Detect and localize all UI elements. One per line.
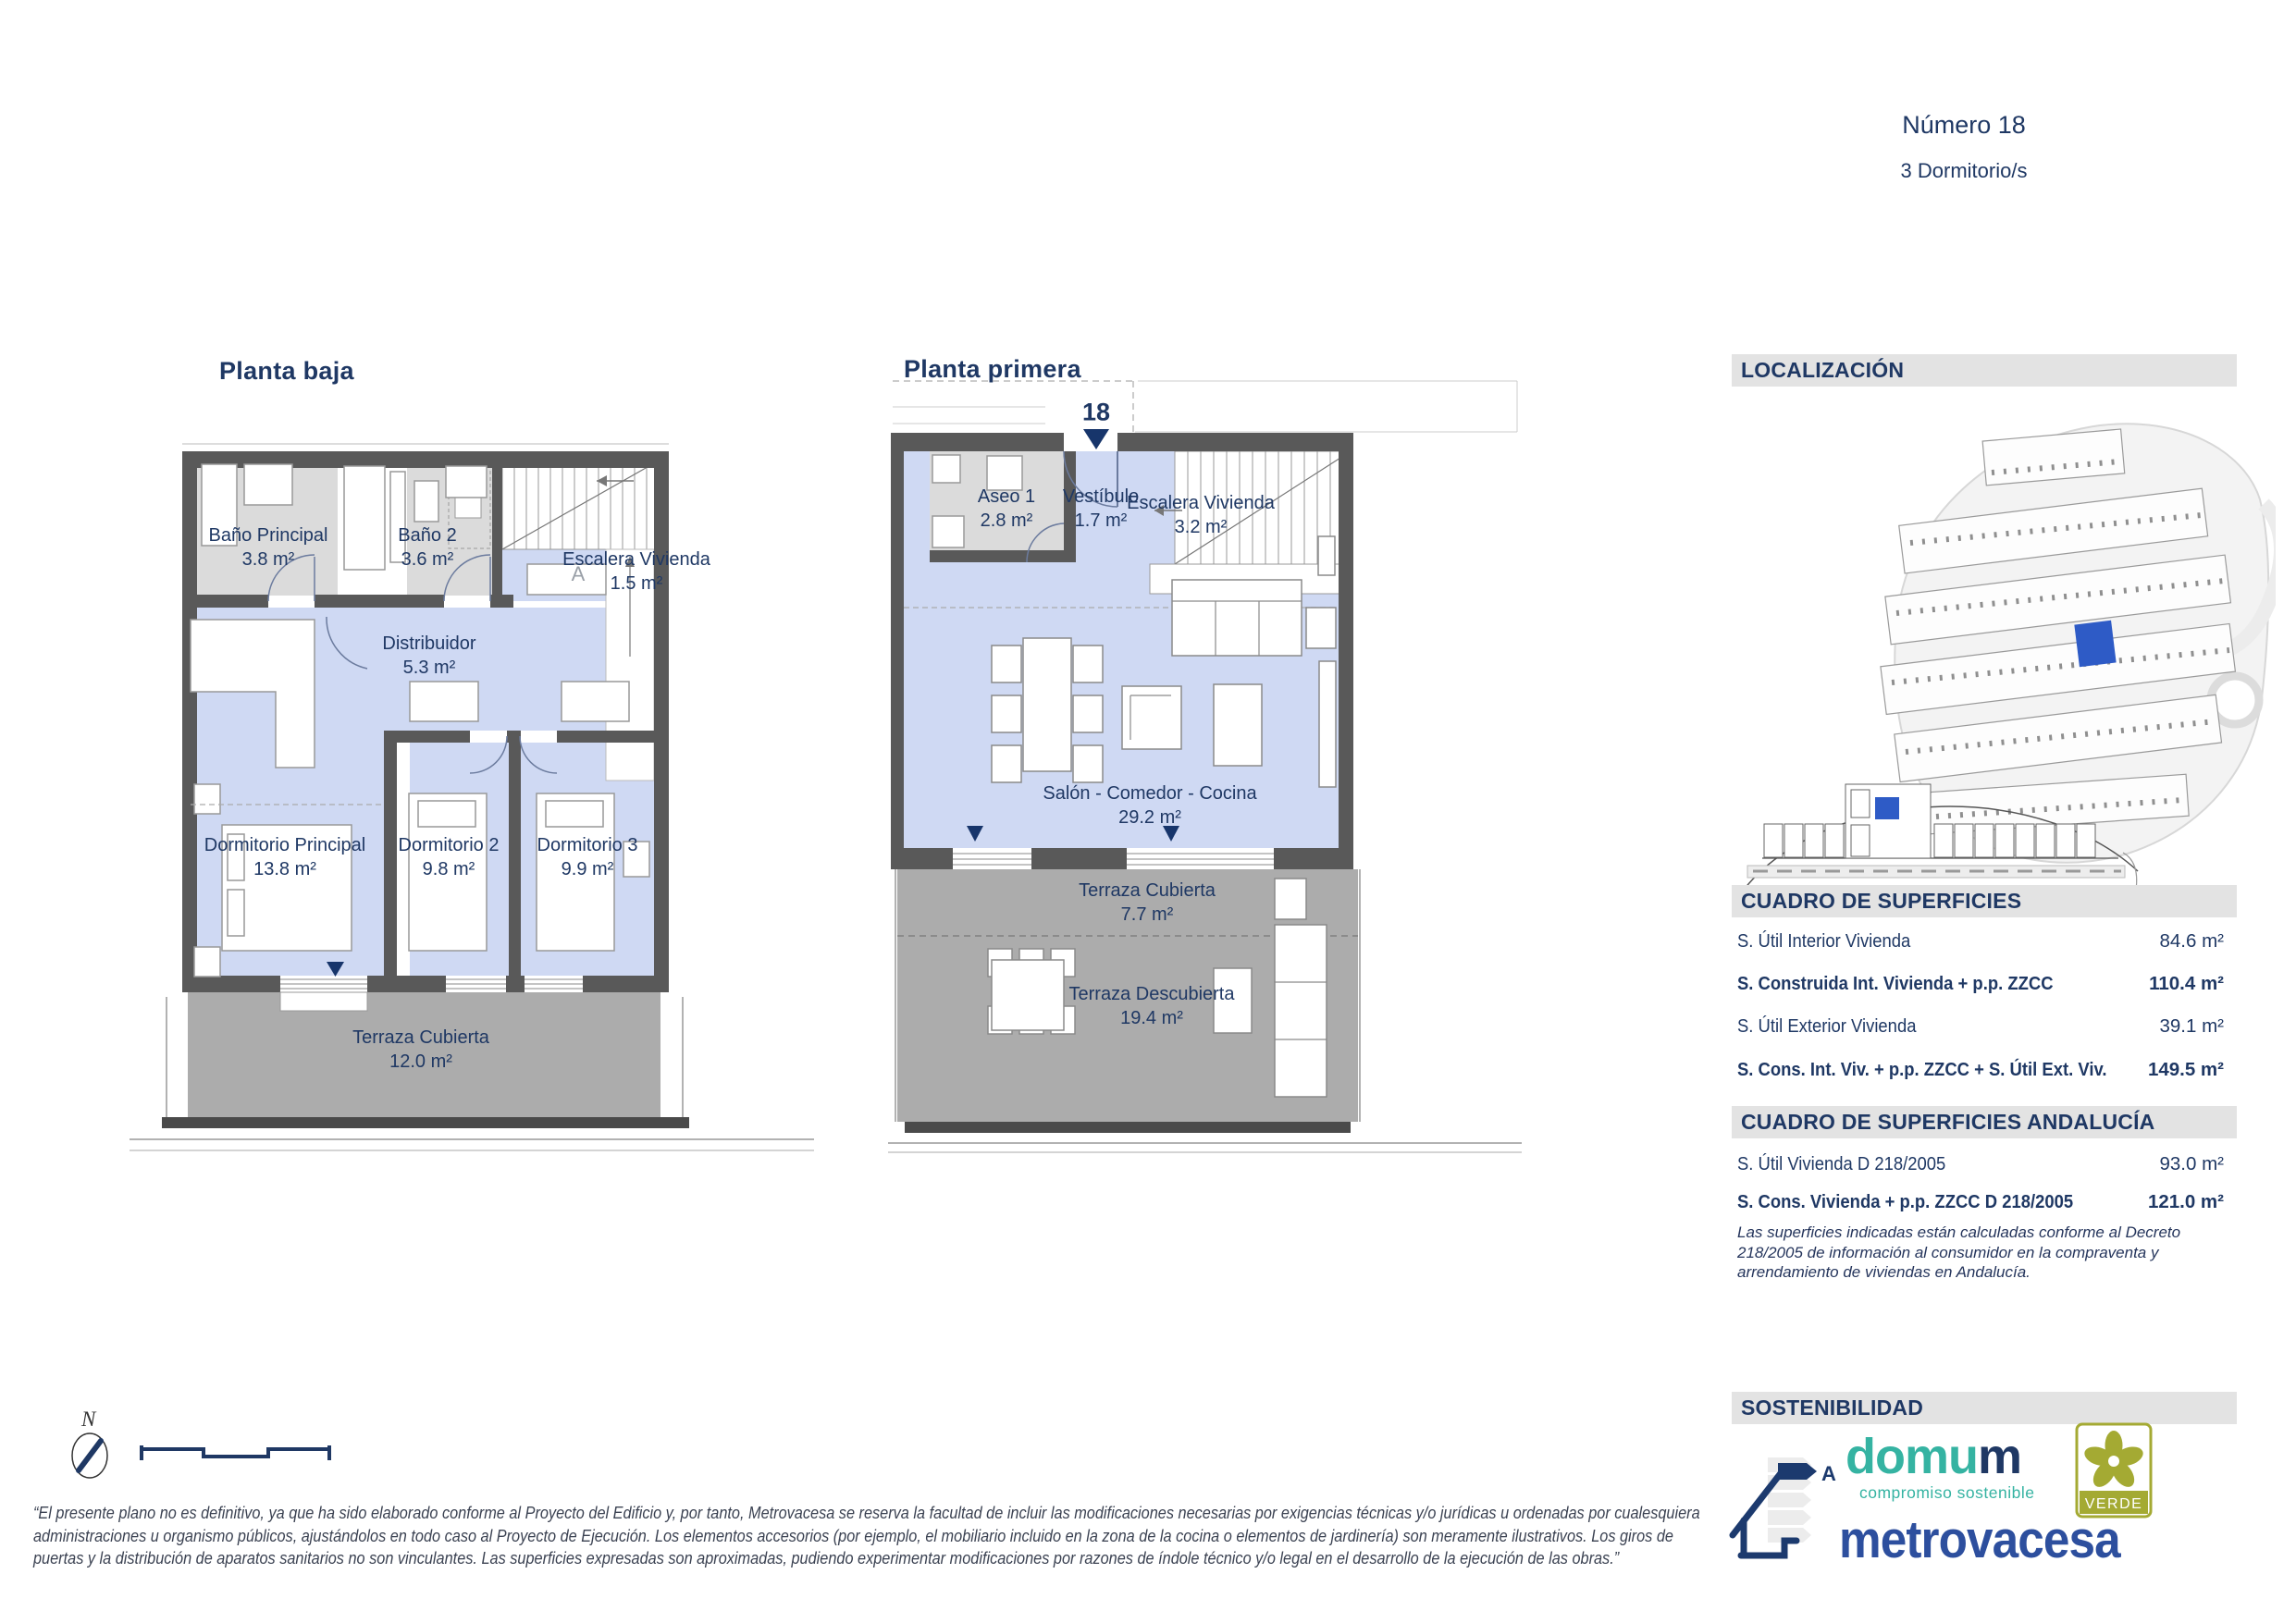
room-label-escalera-vivienda-p1: Escalera Vivienda3.2 m² — [1127, 491, 1275, 539]
bedrooms-subtitle: 3 Dormitorio/s — [1825, 159, 2103, 183]
energy-rating-icon: A — [1725, 1443, 1850, 1563]
unit-entry-marker-triangle — [1083, 429, 1109, 449]
legal-disclaimer: “El presente plano no es definitivo, ya … — [33, 1502, 1700, 1570]
room-label-terraza-cubierta-p1: Terraza Cubierta7.7 m² — [1079, 879, 1216, 927]
section-title-sostenibilidad: SOSTENIBILIDAD — [1741, 1396, 1923, 1420]
highlighted-unit-3d — [2074, 621, 2116, 668]
unit-number-title: Número 18 — [1825, 111, 2103, 140]
plan-sheet: Número 18 3 Dormitorio/s Planta baja Pla… — [0, 0, 2296, 1623]
domum-tagline: compromiso sostenible — [1859, 1483, 2034, 1503]
disclaimer-line: administraciones u organismo públicos, a… — [33, 1525, 1700, 1548]
room-label-terraza-cubierta-pb: Terraza Cubierta12.0 m² — [352, 1026, 489, 1074]
section-header-superficies: CUADRO DE SUPERFICIES — [1732, 885, 2237, 917]
surface-row: S. Útil Exterior Vivienda 39.1 m² — [1737, 1015, 2224, 1043]
room-label-bano-2: Baño 23.6 m² — [398, 523, 456, 572]
room-label-terraza-descubierta: Terraza Descubierta19.4 m² — [1069, 982, 1235, 1030]
north-label: N — [81, 1408, 95, 1432]
room-label-dormitorio-2: Dormitorio 29.8 m² — [399, 833, 500, 881]
room-label-salon-comedor-cocina: Salón - Comedor - Cocina29.2 m² — [1043, 781, 1256, 830]
site-map-plan — [1734, 714, 2142, 894]
domum-logo: domum — [1845, 1428, 2021, 1485]
surface-row: S. Cons. Int. Viv. + p.p. ZZCC + S. Útil… — [1737, 1059, 2224, 1087]
verde-logo: VERDE — [2075, 1422, 2153, 1518]
section-title-localizacion: LOCALIZACIÓN — [1741, 358, 1904, 383]
room-label-bano-principal: Baño Principal3.8 m² — [209, 523, 328, 572]
section-title-superficies-andalucia: CUADRO DE SUPERFICIES ANDALUCÍA — [1741, 1110, 2154, 1135]
section-title-superficies: CUADRO DE SUPERFICIES — [1741, 889, 2021, 914]
section-header-localizacion: LOCALIZACIÓN — [1732, 354, 2237, 387]
stair-zone-label: A — [572, 562, 586, 586]
unit-number-marker: 18 — [1082, 399, 1110, 427]
highlighted-unit-plan — [1875, 797, 1899, 819]
room-label-dormitorio-principal: Dormitorio Principal13.8 m² — [204, 833, 366, 881]
surface-row-andalucia: S. Cons. Vivienda + p.p. ZZCC D 218/2005… — [1737, 1191, 2224, 1219]
verde-label: VERDE — [2085, 1496, 2143, 1512]
surface-row: S. Útil Interior Vivienda 84.6 m² — [1737, 930, 2224, 958]
room-label-distribuidor: Distribuidor5.3 m² — [382, 632, 475, 680]
energy-letter: A — [1821, 1462, 1836, 1485]
ground-floor-plan: Baño Principal3.8 m² Baño 23.6 m² Escale… — [130, 351, 833, 1165]
disclaimer-line: “El presente plano no es definitivo, ya … — [33, 1502, 1700, 1525]
andalucia-note: Las superficies indicadas están calculad… — [1737, 1223, 2241, 1283]
section-header-sostenibilidad: SOSTENIBILIDAD — [1732, 1392, 2237, 1424]
room-label-dormitorio-3: Dormitorio 39.9 m² — [537, 833, 638, 881]
disclaimer-line: puertas y la distribución de aparatos sa… — [33, 1547, 1700, 1570]
surface-row-andalucia: S. Útil Vivienda D 218/2005 93.0 m² — [1737, 1153, 2224, 1181]
room-label-aseo-1: Aseo 12.8 m² — [978, 485, 1035, 533]
first-floor-plan: 18 Aseo 12.8 m² Vestíbulo1.7 m² Escalera… — [888, 351, 1536, 1165]
surface-row: S. Construida Int. Vivienda + p.p. ZZCC … — [1737, 973, 2224, 1001]
section-header-superficies-andalucia: CUADRO DE SUPERFICIES ANDALUCÍA — [1732, 1106, 2237, 1138]
first-floor-drawing — [888, 351, 1536, 1165]
compass-icon — [70, 1432, 113, 1482]
scale-bar — [139, 1443, 335, 1467]
